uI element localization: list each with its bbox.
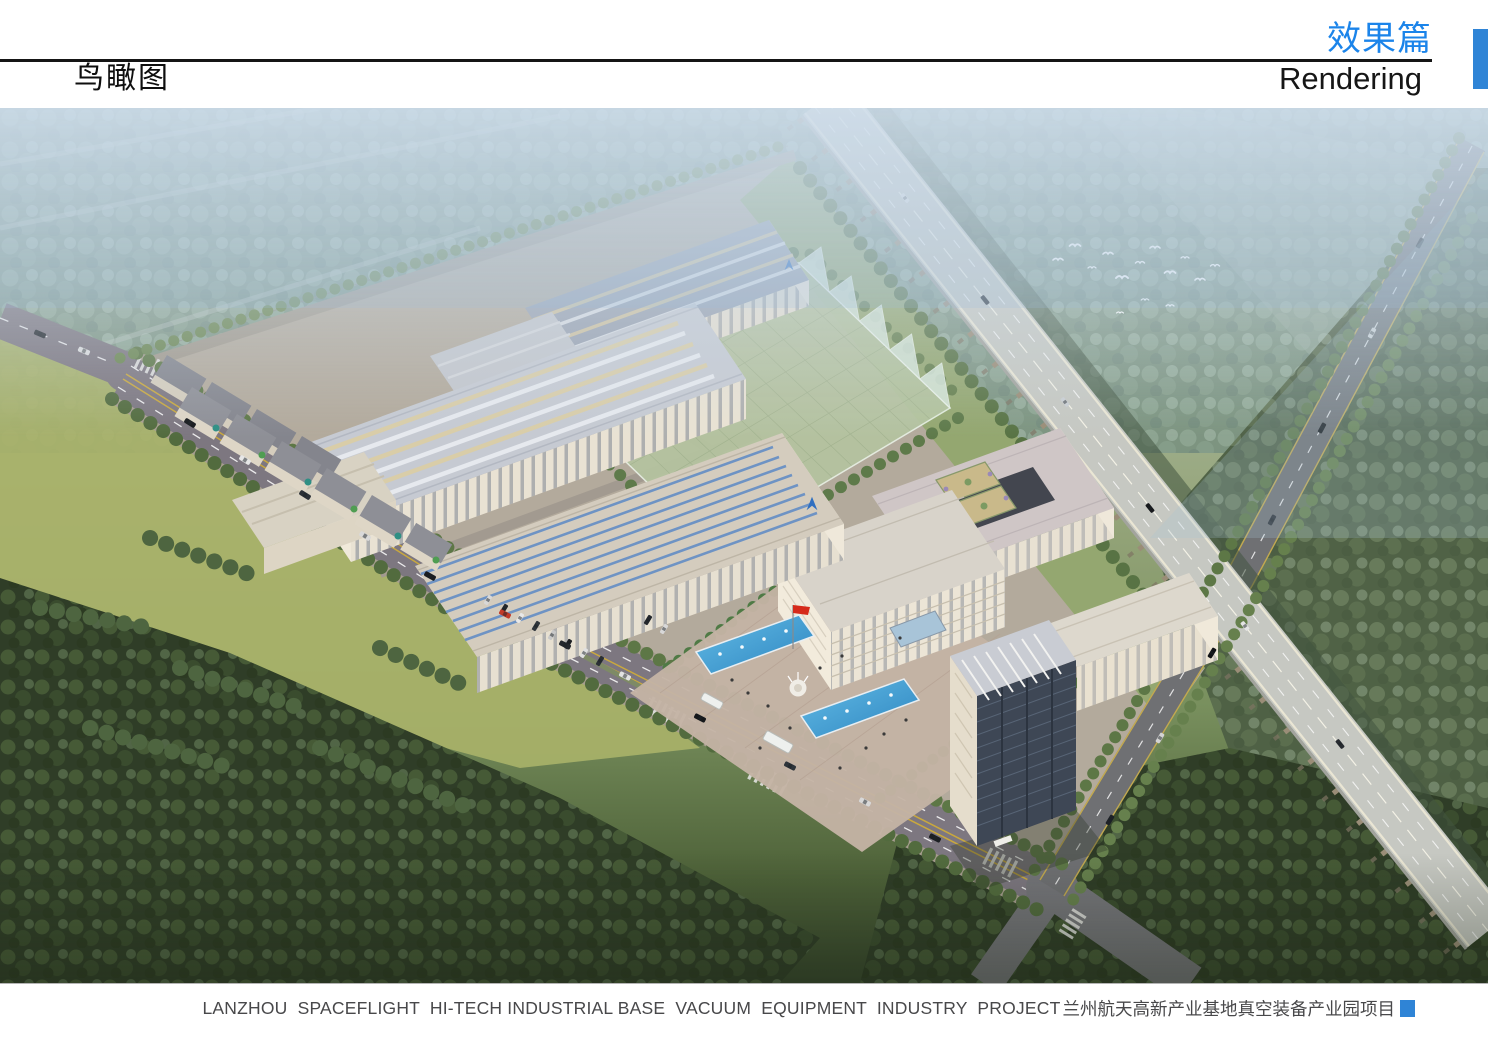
caption-en: LANZHOU SPACEFLIGHT HI-TECH INDUSTRIAL B… [202, 998, 1060, 1019]
section-title-en: Rendering [1279, 63, 1422, 95]
footer-caption: LANZHOU SPACEFLIGHT HI-TECH INDUSTRIAL B… [202, 997, 1415, 1019]
caption-blue-square [1400, 1000, 1415, 1017]
page: 效果篇 Rendering 鸟瞰图 Aerial bird's-eye arch… [0, 0, 1488, 1052]
header-blue-tab [1473, 29, 1488, 89]
header-rule [0, 59, 1432, 62]
aerial-rendering-image: Aerial bird's-eye architectural renderin… [0, 108, 1488, 984]
page-title: 鸟瞰图 [74, 63, 170, 95]
caption-zh: 兰州航天高新产业基地真空装备产业园项目 [1063, 996, 1396, 1021]
section-title-zh: 效果篇 [1327, 21, 1432, 57]
